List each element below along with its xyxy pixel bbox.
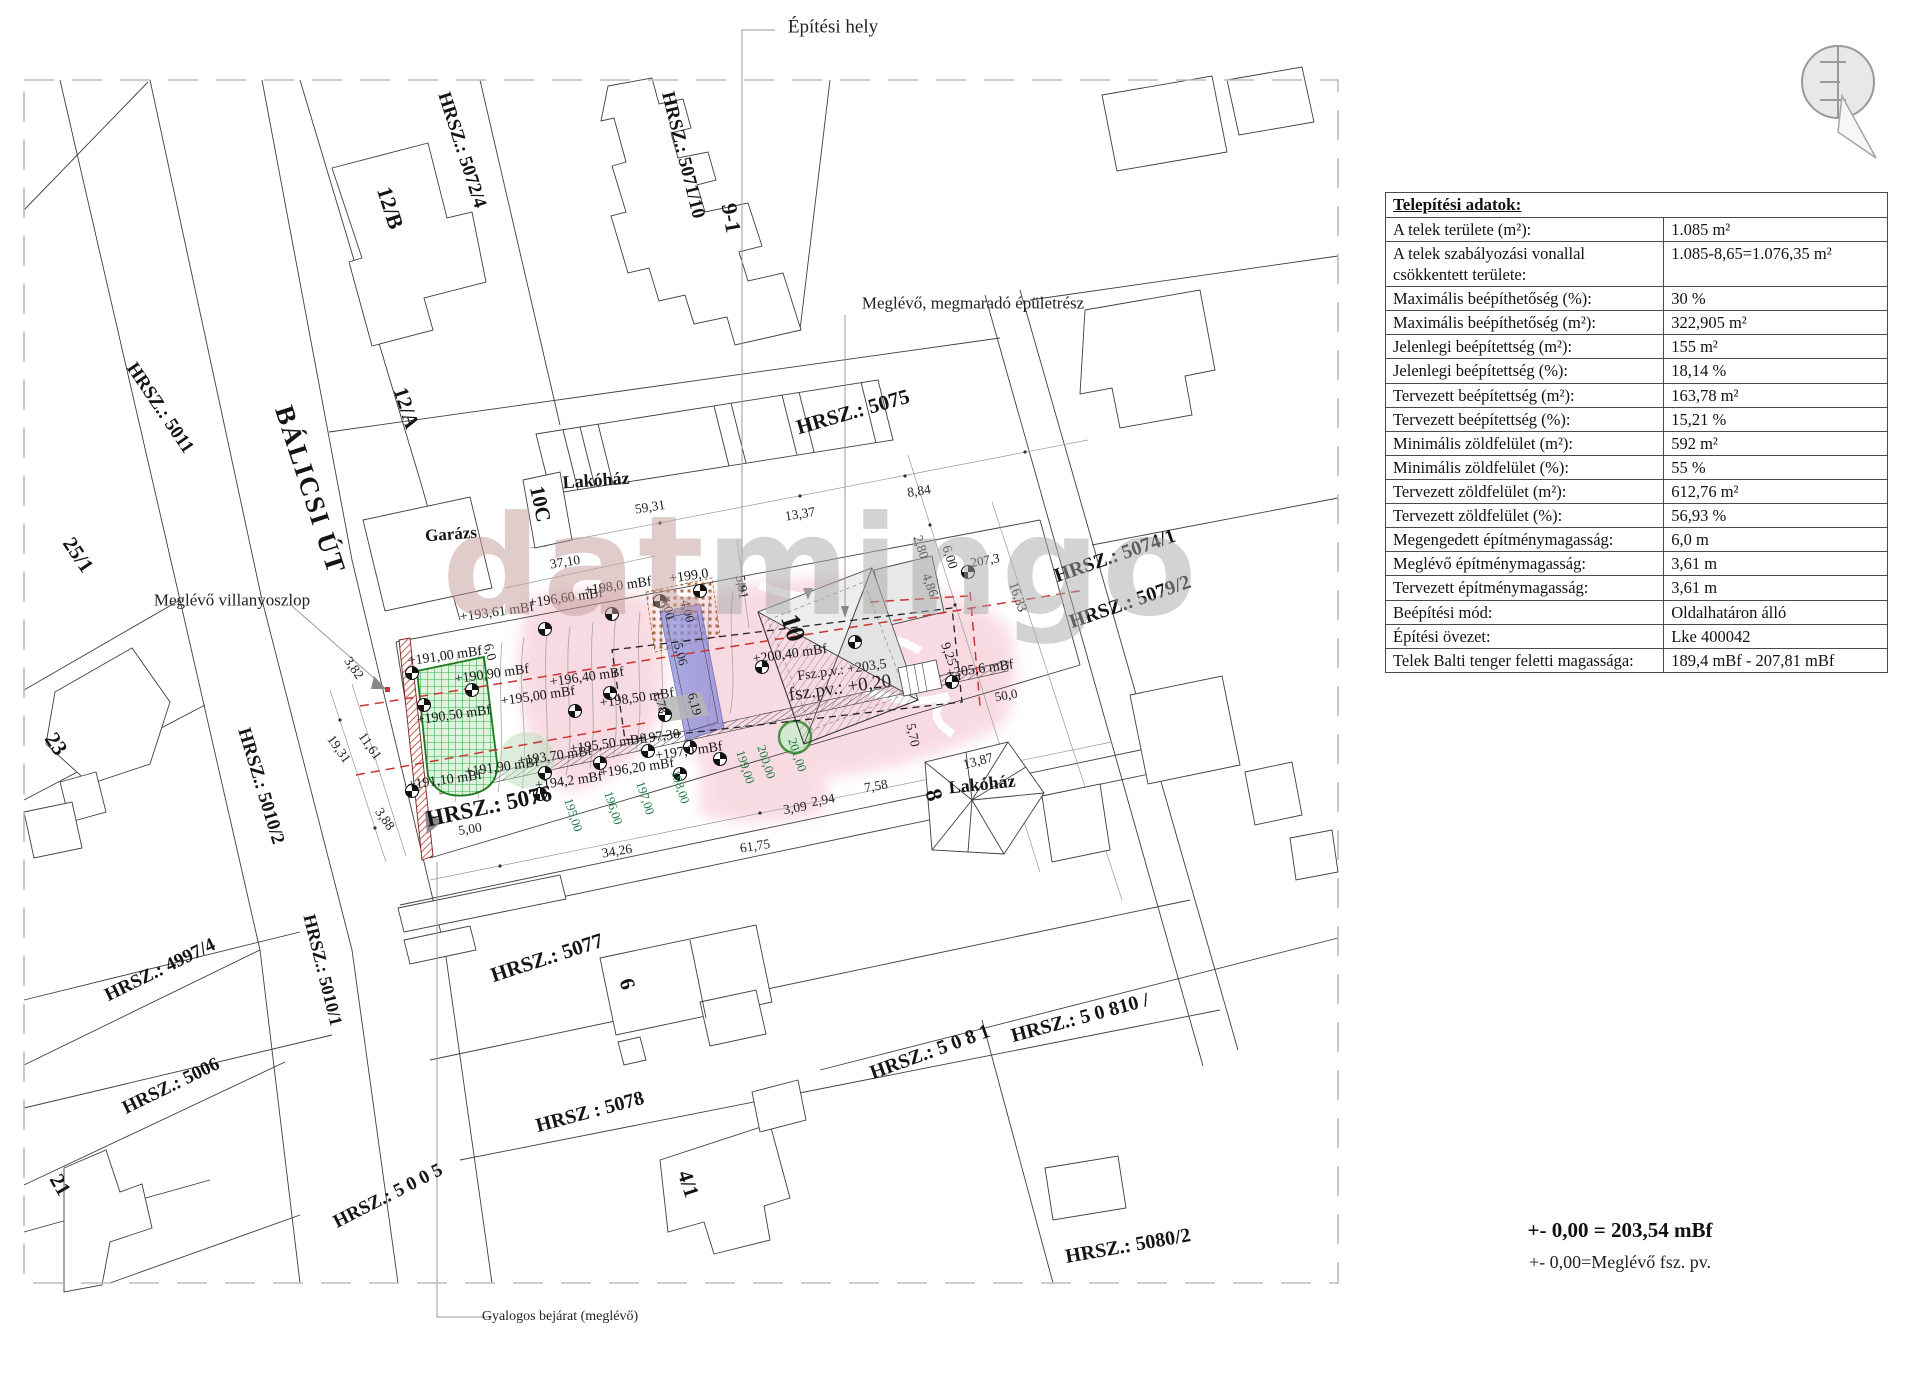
table-row: Minimális zöldfelület (m²):592 m² xyxy=(1386,431,1888,455)
house-8 xyxy=(925,742,1110,862)
survey-marker xyxy=(406,785,419,798)
survey-marker xyxy=(569,705,582,718)
survey-marker xyxy=(604,687,617,700)
table-row-label: Meglévő építménymagasság: xyxy=(1386,552,1664,576)
table-row: Tervezett beépítettség (%):15,21 % xyxy=(1386,407,1888,431)
table-row: Beépítési mód:Oldalhatáron álló xyxy=(1386,600,1888,624)
table-row-value: 1.085-8,65=1.076,35 m² xyxy=(1664,241,1888,286)
survey-marker xyxy=(946,676,959,689)
table-row: Telek Balti tenger feletti magassága:189… xyxy=(1386,648,1888,672)
survey-marker xyxy=(466,684,479,697)
table-row-value: 189,4 mBf - 207,81 mBf xyxy=(1664,648,1888,672)
power-pole-marker xyxy=(385,687,390,692)
table-row: Megengedett építménymagasság:6,0 m xyxy=(1386,528,1888,552)
table-row: Tervezett építménymagasság:3,61 m xyxy=(1386,576,1888,600)
table-row-value: 55 % xyxy=(1664,455,1888,479)
site-plan-page: HRSZ.: 5072/412/BHRSZ.: 5071/109-1HRSZ.:… xyxy=(0,0,1920,1376)
table-row-label: A telek területe (m²): xyxy=(1386,217,1664,241)
survey-marker xyxy=(539,767,552,780)
table-row: A telek szabályozási vonallal csökkentet… xyxy=(1386,241,1888,286)
table-row-value: 3,61 m xyxy=(1664,576,1888,600)
table-title: Telepítési adatok: xyxy=(1393,195,1521,214)
table-row-value: 155 m² xyxy=(1664,335,1888,359)
survey-marker xyxy=(406,667,419,680)
planning-data-table: Telepítési adatok: A telek területe (m²)… xyxy=(1385,192,1888,673)
survey-marker xyxy=(962,566,975,579)
table-row-label: Tervezett építménymagasság: xyxy=(1386,576,1664,600)
table-title-cell: Telepítési adatok: xyxy=(1386,193,1888,218)
table-row-value: 1.085 m² xyxy=(1664,217,1888,241)
table-row-value: 592 m² xyxy=(1664,431,1888,455)
survey-marker xyxy=(674,768,687,781)
table-row-label: Építési övezet: xyxy=(1386,624,1664,648)
survey-marker xyxy=(594,757,607,770)
table-row: A telek területe (m²):1.085 m² xyxy=(1386,217,1888,241)
table-row-value: 15,21 % xyxy=(1664,407,1888,431)
table-row-label: Tervezett zöldfelület (%): xyxy=(1386,504,1664,528)
table-row-value: 612,76 m² xyxy=(1664,479,1888,503)
survey-marker xyxy=(756,661,769,674)
table-row: Maximális beépíthetőség (m²):322,905 m² xyxy=(1386,311,1888,335)
table-row: Minimális zöldfelület (%):55 % xyxy=(1386,455,1888,479)
survey-marker xyxy=(654,595,667,608)
table-row-value: 30 % xyxy=(1664,287,1888,311)
survey-marker xyxy=(694,585,707,598)
table-row-label: Megengedett építménymagasság: xyxy=(1386,528,1664,552)
green-area xyxy=(417,657,497,796)
table-row: Jelenlegi beépítettség (%):18,14 % xyxy=(1386,359,1888,383)
survey-marker xyxy=(606,608,619,621)
survey-marker xyxy=(539,623,552,636)
table-row-value: 322,905 m² xyxy=(1664,311,1888,335)
table-row-label: Tervezett zöldfelület (m²): xyxy=(1386,479,1664,503)
table-row-value: 6,0 m xyxy=(1664,528,1888,552)
table-row: Tervezett zöldfelület (m²):612,76 m² xyxy=(1386,479,1888,503)
table-row-label: Telek Balti tenger feletti magassága: xyxy=(1386,648,1664,672)
table-row-label: Maximális beépíthetőség (m²): xyxy=(1386,311,1664,335)
table-row: Építési övezet:Lke 400042 xyxy=(1386,624,1888,648)
table-row-label: Jelenlegi beépítettség (m²): xyxy=(1386,335,1664,359)
table-header-row: Telepítési adatok: xyxy=(1386,193,1888,218)
survey-marker xyxy=(642,745,655,758)
table-row-label: Beépítési mód: xyxy=(1386,600,1664,624)
survey-marker xyxy=(534,788,547,801)
table-row: Tervezett beépítettség (m²):163,78 m² xyxy=(1386,383,1888,407)
table-row-label: Jelenlegi beépítettség (%): xyxy=(1386,359,1664,383)
table-row-value: 163,78 m² xyxy=(1664,383,1888,407)
north-buildings xyxy=(363,380,893,611)
wall-end-arrow-icon xyxy=(425,812,443,834)
logo xyxy=(1802,46,1876,158)
survey-marker xyxy=(418,699,431,712)
table-row-label: Tervezett beépítettség (m²): xyxy=(1386,383,1664,407)
table-row: Tervezett zöldfelület (%):56,93 % xyxy=(1386,504,1888,528)
table-row-value: 18,14 % xyxy=(1664,359,1888,383)
survey-marker xyxy=(659,709,672,722)
table-row: Meglévő építménymagasság:3,61 m xyxy=(1386,552,1888,576)
table-row-label: Tervezett beépítettség (%): xyxy=(1386,407,1664,431)
survey-marker xyxy=(714,753,727,766)
table-row-value: Lke 400042 xyxy=(1664,624,1888,648)
table-row-value: 3,61 m xyxy=(1664,552,1888,576)
datum-note-secondary: +- 0,00=Meglévő fsz. pv. xyxy=(1470,1252,1770,1273)
table-row-label: Minimális zöldfelület (m²): xyxy=(1386,431,1664,455)
survey-marker xyxy=(849,636,862,649)
table-row-value: Oldalhatáron álló xyxy=(1664,600,1888,624)
table-row-value: 56,93 % xyxy=(1664,504,1888,528)
table-row-label: Maximális beépíthetőség (%): xyxy=(1386,287,1664,311)
table-row: Jelenlegi beépítettség (m²):155 m² xyxy=(1386,335,1888,359)
survey-marker xyxy=(684,741,697,754)
datum-note-primary: +- 0,00 = 203,54 mBf xyxy=(1470,1218,1770,1243)
table-row-label: A telek szabályozási vonallal csökkentet… xyxy=(1386,241,1664,286)
table-row: Maximális beépíthetőség (%):30 % xyxy=(1386,287,1888,311)
table-row-label: Minimális zöldfelület (%): xyxy=(1386,455,1664,479)
